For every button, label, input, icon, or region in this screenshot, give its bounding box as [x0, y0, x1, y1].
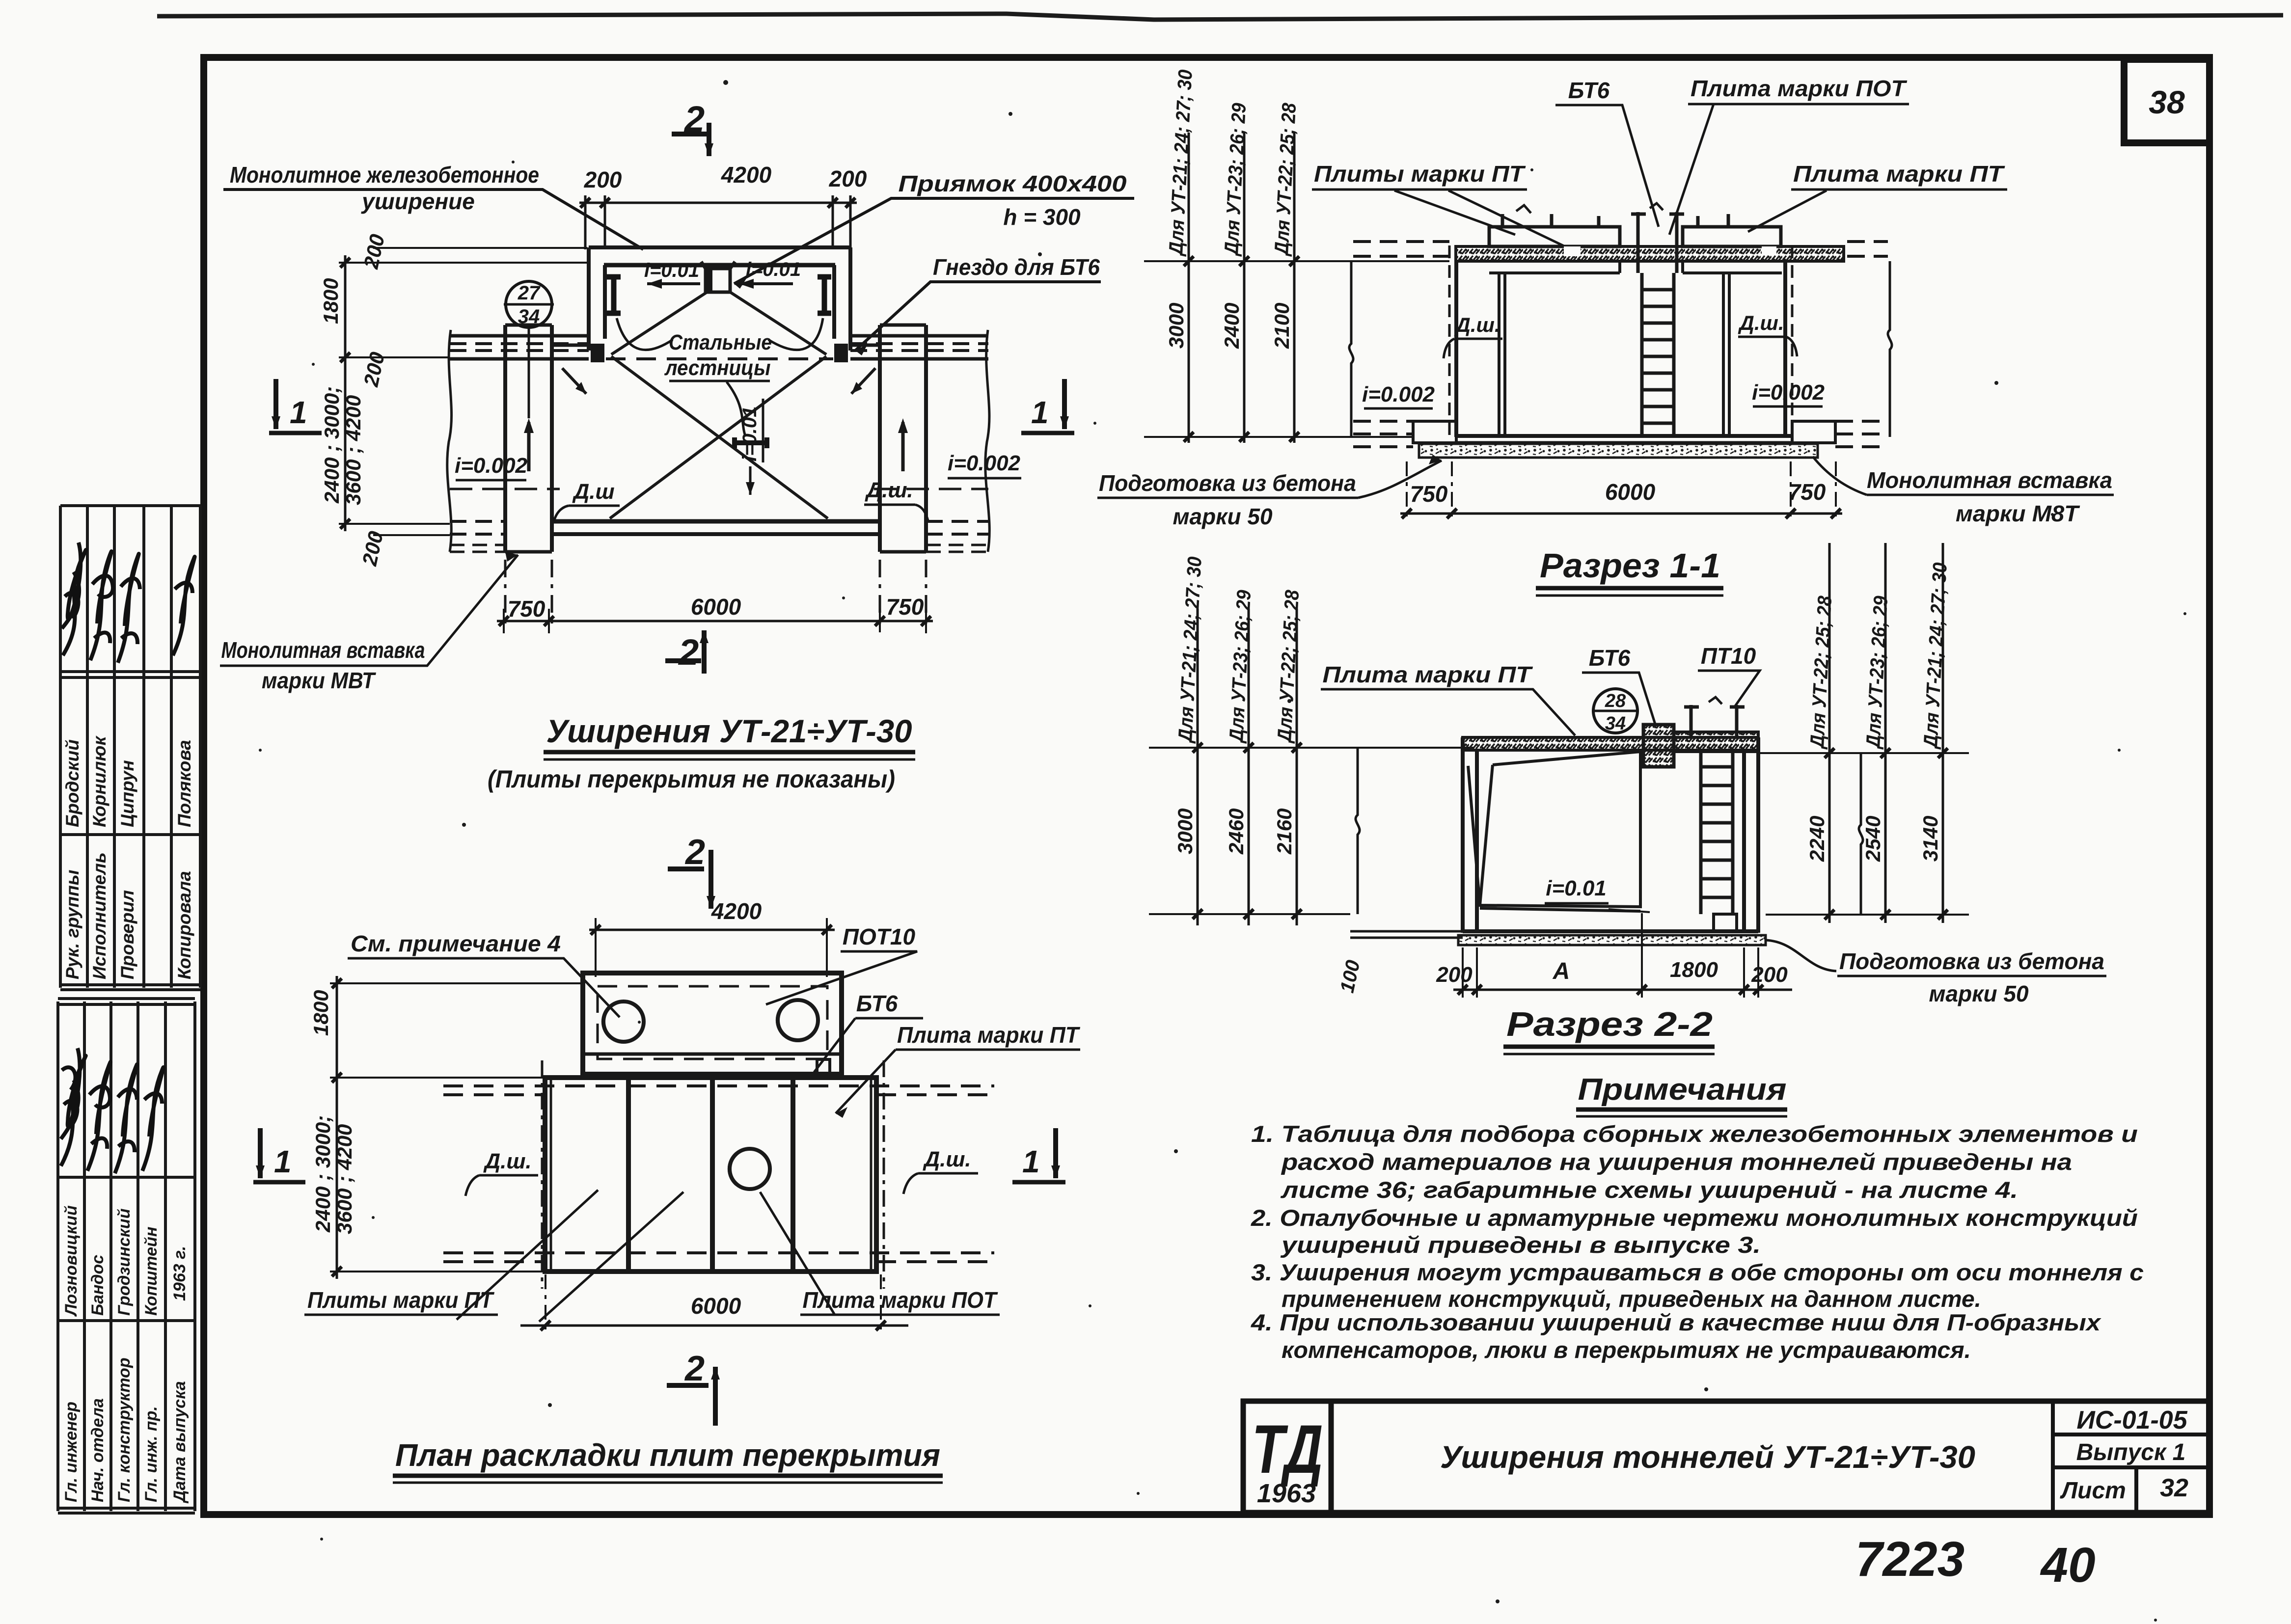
svg-text:38: 38 [2149, 84, 2185, 120]
svg-text:3600 ; 4200: 3600 ; 4200 [333, 1124, 356, 1234]
svg-text:2160: 2160 [1273, 809, 1296, 855]
svg-text:750: 750 [1410, 481, 1448, 507]
svg-text:Монолитная вставка: Монолитная вставка [1867, 467, 2112, 493]
svg-text:2: 2 [684, 1349, 705, 1388]
svg-text:Гнездо для БТ6: Гнездо для БТ6 [933, 254, 1100, 280]
svg-text:Уширения тоннелей УТ-21÷УТ-3: Уширения тоннелей УТ-21÷УТ-30 [1440, 1439, 1975, 1475]
svg-text:200: 200 [1436, 963, 1473, 987]
svg-text:i=0.01: i=0.01 [746, 259, 801, 280]
svg-text:1. Таблица для подбора сборных: 1. Таблица для подбора сборных железобет… [1251, 1121, 2138, 1147]
svg-text:Плита марки ПТ: Плита марки ПТ [1793, 161, 2005, 187]
svg-text:750: 750 [508, 596, 545, 622]
svg-text:i=0.01: i=0.01 [739, 406, 761, 461]
svg-text:4200: 4200 [721, 162, 772, 188]
svg-text:1963: 1963 [1257, 1479, 1316, 1508]
svg-text:28: 28 [1605, 691, 1626, 711]
svg-text:Плиты марки ПТ: Плиты марки ПТ [1314, 161, 1526, 187]
svg-text:А: А [1553, 958, 1570, 984]
svg-text:БТ6: БТ6 [1589, 645, 1631, 671]
svg-text:Дата выпуска: Дата выпуска [170, 1381, 189, 1504]
svg-text:Д.ш.: Д.ш. [483, 1149, 531, 1173]
svg-text:27: 27 [518, 282, 541, 304]
svg-text:2540: 2540 [1861, 816, 1884, 862]
svg-text:i=0.002: i=0.002 [455, 454, 528, 478]
svg-text:2. Опалубочные и арматурные че: 2. Опалубочные и арматурные чертежи моно… [1251, 1205, 2138, 1231]
svg-text:Копштейн: Копштейн [142, 1227, 161, 1316]
svg-text:ТД: ТД [1252, 1410, 1323, 1488]
svg-text:34: 34 [518, 306, 540, 327]
svg-text:750: 750 [886, 594, 924, 620]
svg-text:6000: 6000 [1605, 479, 1656, 505]
svg-text:Исполнитель: Исполнитель [89, 852, 109, 979]
svg-text:Плита марки ПТ: Плита марки ПТ [1323, 662, 1533, 687]
svg-text:Проверил: Проверил [117, 890, 137, 979]
svg-text:См. примечание 4: См. примечание 4 [351, 931, 561, 956]
svg-text:марки 50: марки 50 [1929, 981, 2028, 1006]
svg-text:6000: 6000 [691, 594, 741, 620]
svg-text:7223: 7223 [1855, 1532, 1964, 1587]
svg-text:Подготовка из бетона: Подготовка из бетона [1839, 948, 2104, 974]
svg-text:2400 ; 3000;: 2400 ; 3000; [311, 1115, 334, 1233]
svg-text:БТ6: БТ6 [856, 991, 898, 1016]
svg-text:2400: 2400 [1220, 303, 1243, 349]
svg-text:200: 200 [584, 167, 622, 192]
svg-text:План раскладки плит перекрытия: План раскладки плит перекрытия [395, 1437, 940, 1473]
svg-text:1800: 1800 [309, 990, 332, 1036]
svg-text:h = 300: h = 300 [1003, 204, 1081, 230]
svg-text:3. Уширения могут устраиваться: 3. Уширения могут устраиваться в обе сто… [1251, 1259, 2144, 1285]
svg-text:Подготовка из бетона: Подготовка из бетона [1099, 470, 1356, 496]
svg-text:расход материалов на уширения: расход материалов на уширения тоннелей п… [1281, 1149, 2072, 1175]
svg-text:2: 2 [678, 632, 699, 673]
svg-text:Примечания: Примечания [1578, 1073, 1787, 1107]
svg-text:Д.ш.: Д.ш. [1454, 313, 1500, 336]
svg-text:1: 1 [274, 1144, 292, 1179]
svg-text:2460: 2460 [1225, 809, 1248, 855]
svg-text:Монолитная вставка: Монолитная вставка [221, 637, 425, 663]
svg-text:Монолитное железобетонное: Монолитное железобетонное [230, 162, 539, 188]
svg-text:1800: 1800 [1670, 958, 1718, 982]
svg-text:ИС-01-05: ИС-01-05 [2076, 1406, 2187, 1435]
svg-text:Выпуск 1: Выпуск 1 [2076, 1439, 2186, 1465]
svg-text:Гл. конструктор: Гл. конструктор [115, 1357, 134, 1502]
svg-text:Разрез 1-1: Разрез 1-1 [1540, 546, 1720, 585]
svg-text:2240: 2240 [1805, 816, 1828, 862]
svg-text:Бандос: Бандос [88, 1255, 107, 1316]
svg-text:Разрез 2-2: Разрез 2-2 [1506, 1005, 1713, 1043]
svg-text:3140: 3140 [1919, 816, 1942, 862]
svg-text:Рук. группы: Рук. группы [62, 870, 82, 979]
svg-text:3600 ; 4200: 3600 ; 4200 [342, 395, 365, 505]
svg-text:Уширения УТ-21÷УТ-30: Уширения УТ-21÷УТ-30 [546, 713, 912, 749]
svg-text:Ципрун: Ципрун [117, 760, 137, 827]
svg-text:Лозновицкий: Лозновицкий [62, 1205, 81, 1317]
svg-text:Д.ш: Д.ш [572, 480, 614, 504]
svg-text:уширений приведены в выпуске 3: уширений приведены в выпуске 3. [1281, 1232, 1761, 1258]
svg-text:(Плиты перекрытия не показаны): (Плиты перекрытия не показаны) [488, 765, 895, 793]
svg-text:4. При использовании уширений: 4. При использовании уширений в качестве… [1251, 1309, 2101, 1335]
svg-text:1963 г.: 1963 г. [170, 1246, 189, 1301]
svg-text:Лист: Лист [2060, 1478, 2126, 1504]
svg-text:Гл. инж. пр.: Гл. инж. пр. [142, 1406, 161, 1502]
svg-text:1: 1 [1031, 395, 1049, 430]
svg-text:Корнилюк: Корнилюк [89, 735, 109, 828]
svg-text:Копировала: Копировала [174, 871, 194, 979]
svg-text:ПТ10: ПТ10 [1701, 643, 1756, 669]
svg-text:ПОТ10: ПОТ10 [843, 924, 916, 949]
svg-text:1: 1 [1022, 1144, 1040, 1179]
svg-text:марки МВТ: марки МВТ [262, 668, 377, 693]
svg-text:i=0.002: i=0.002 [948, 451, 1021, 475]
svg-text:Плита марки ПТ: Плита марки ПТ [897, 1022, 1081, 1048]
svg-text:Приямок 400х400: Приямок 400х400 [899, 171, 1127, 196]
svg-text:Бродский: Бродский [62, 739, 82, 827]
svg-text:марки М8Т: марки М8Т [1956, 501, 2080, 526]
svg-text:6000: 6000 [691, 1293, 741, 1319]
svg-text:Стальные: Стальные [669, 330, 772, 354]
svg-text:Плита марки ПОТ: Плита марки ПОТ [1691, 76, 1908, 101]
svg-text:Д.ш.: Д.ш. [864, 478, 913, 502]
svg-text:i=0.01: i=0.01 [644, 260, 699, 281]
svg-text:2400 ; 3000;: 2400 ; 3000; [320, 386, 343, 504]
svg-text:Д.ш.: Д.ш. [1738, 311, 1784, 334]
svg-text:32: 32 [2160, 1474, 2188, 1502]
svg-text:компенсаторов, люки в перекрыт: компенсаторов, люки в перекрытиях не уст… [1282, 1337, 1971, 1363]
svg-text:марки 50: марки 50 [1173, 504, 1272, 529]
svg-text:34: 34 [1605, 713, 1626, 734]
svg-text:40: 40 [2040, 1538, 2095, 1593]
svg-text:200: 200 [829, 166, 867, 191]
svg-text:1: 1 [290, 395, 307, 430]
svg-text:2100: 2100 [1270, 303, 1293, 349]
svg-text:Полякова: Полякова [174, 740, 194, 827]
svg-text:листе 36; габаритные схемы уши: листе 36; габаритные схемы уширений - на… [1281, 1177, 2018, 1203]
svg-text:лестницы: лестницы [664, 356, 771, 380]
svg-text:4200: 4200 [711, 898, 762, 924]
svg-text:3000: 3000 [1173, 809, 1197, 854]
svg-text:2: 2 [684, 833, 705, 872]
svg-text:3000: 3000 [1165, 303, 1188, 349]
svg-text:применением конструкций, приве: применением конструкций, приведеных на д… [1282, 1286, 1981, 1312]
svg-text:1800: 1800 [319, 278, 342, 324]
svg-text:i=0.002: i=0.002 [1752, 380, 1825, 405]
svg-text:i=0.002: i=0.002 [1362, 382, 1435, 406]
svg-text:750: 750 [1788, 479, 1826, 505]
svg-text:уширение: уширение [361, 189, 475, 214]
svg-text:БТ6: БТ6 [1568, 78, 1610, 103]
svg-text:Д.ш.: Д.ш. [922, 1147, 971, 1171]
svg-text:Нач. отдела: Нач. отдела [88, 1398, 107, 1502]
svg-text:200: 200 [1751, 963, 1788, 987]
svg-text:i=0.01: i=0.01 [1546, 876, 1607, 900]
svg-text:Гл. инженер: Гл. инженер [62, 1402, 81, 1502]
svg-text:Гродзинский: Гродзинский [115, 1208, 134, 1316]
